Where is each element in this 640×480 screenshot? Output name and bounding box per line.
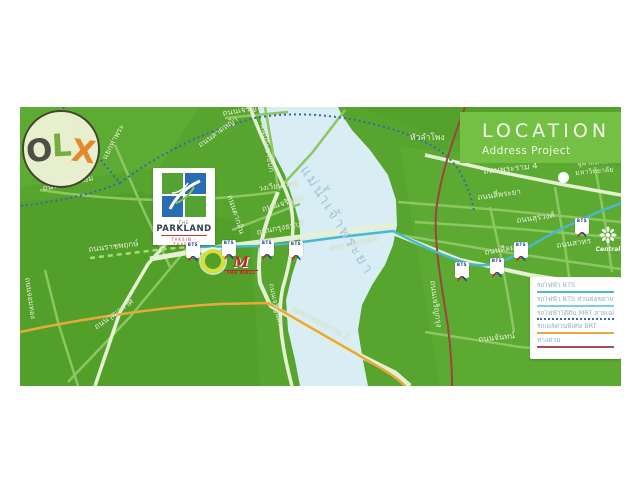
legend-line-mrt <box>537 318 614 320</box>
mall-m-icon: M <box>224 257 258 270</box>
olx-letter-x: X <box>70 135 98 169</box>
location-title: LOCATION <box>482 122 621 141</box>
legend-item: ทางด่วน <box>537 337 614 348</box>
legend-item: รถไฟฟ้า BTS <box>537 282 614 293</box>
bts-label: BTS <box>514 243 528 247</box>
bts-station-icon: BTS <box>186 242 200 258</box>
legend-item: รถเมล์ด่วนพิเศษ BRT <box>537 323 614 334</box>
legend-line-bts-extension <box>537 305 614 307</box>
central-label: Central <box>593 246 621 253</box>
mall-label: THE MALL <box>224 270 258 276</box>
bts-station-icon: BTS <box>514 242 528 258</box>
bts-label: BTS <box>575 219 589 223</box>
bts-label: BTS <box>260 241 274 245</box>
road-label: หัวลำโพง <box>410 134 445 143</box>
location-subtitle: Address Project <box>482 145 621 157</box>
bts-station-icon: BTS <box>575 218 589 234</box>
legend-line-brt <box>537 332 614 334</box>
parkland-brand-sub: TAKSIN - THAPRA <box>161 235 207 247</box>
parkland-logo-icon <box>162 173 206 217</box>
the-mall-logo: M THE MALL <box>224 257 258 276</box>
bts-label: BTS <box>289 242 303 246</box>
bts-station-icon: BTS <box>289 241 303 257</box>
bts-label: BTS <box>490 259 504 263</box>
legend-item: รถไฟฟ้าใต้ดิน MRT สายเฉลิมรัชมงคล <box>537 310 614 321</box>
legend-label: รถเมล์ด่วนพิเศษ BRT <box>537 323 614 331</box>
chao-phraya-river <box>258 107 397 386</box>
location-header: LOCATION Address Project <box>460 112 621 163</box>
parkland-leaf-icon <box>162 173 206 217</box>
central-logo: Central <box>593 226 621 253</box>
bts-station-icon: BTS <box>260 240 274 256</box>
bts-label: BTS <box>222 241 236 245</box>
olx-letter-l: L <box>51 130 72 162</box>
bts-station-icon: BTS <box>222 240 236 256</box>
legend-line-bts <box>537 291 614 293</box>
legend-item: รถไฟฟ้า BTS ส่วนต่อขยาย <box>537 296 614 307</box>
bts-label: BTS <box>186 243 200 247</box>
location-map: ถนนเจริญนคร ถนนลาดหญ้า ถนนประชาธิปก วงเว… <box>20 107 621 386</box>
legend-label: รถไฟฟ้า BTS <box>537 282 614 290</box>
olx-watermark-logo: O L X <box>22 110 100 188</box>
transit-legend: รถไฟฟ้า BTS รถไฟฟ้า BTS ส่วนต่อขยาย รถไฟ… <box>530 277 621 359</box>
legend-label: ทางด่วน <box>537 337 614 345</box>
bts-station-icon: BTS <box>455 262 469 278</box>
legend-label: รถไฟฟ้า BTS ส่วนต่อขยาย <box>537 296 614 304</box>
olx-letter-o: O <box>24 134 54 168</box>
legend-line-expressway <box>537 346 614 348</box>
bts-label: BTS <box>455 263 469 267</box>
central-flower-icon <box>599 226 617 244</box>
bts-station-icon: BTS <box>490 258 504 274</box>
parkland-brand-name: PARKLAND <box>153 225 215 234</box>
parkland-logo-card: THE PARKLAND TAKSIN - THAPRA <box>153 168 215 245</box>
university-poi-dot <box>558 172 569 183</box>
district-patch <box>20 192 260 386</box>
legend-label: รถไฟฟ้าใต้ดิน MRT สายเฉลิมรัชมงคล <box>537 310 614 318</box>
